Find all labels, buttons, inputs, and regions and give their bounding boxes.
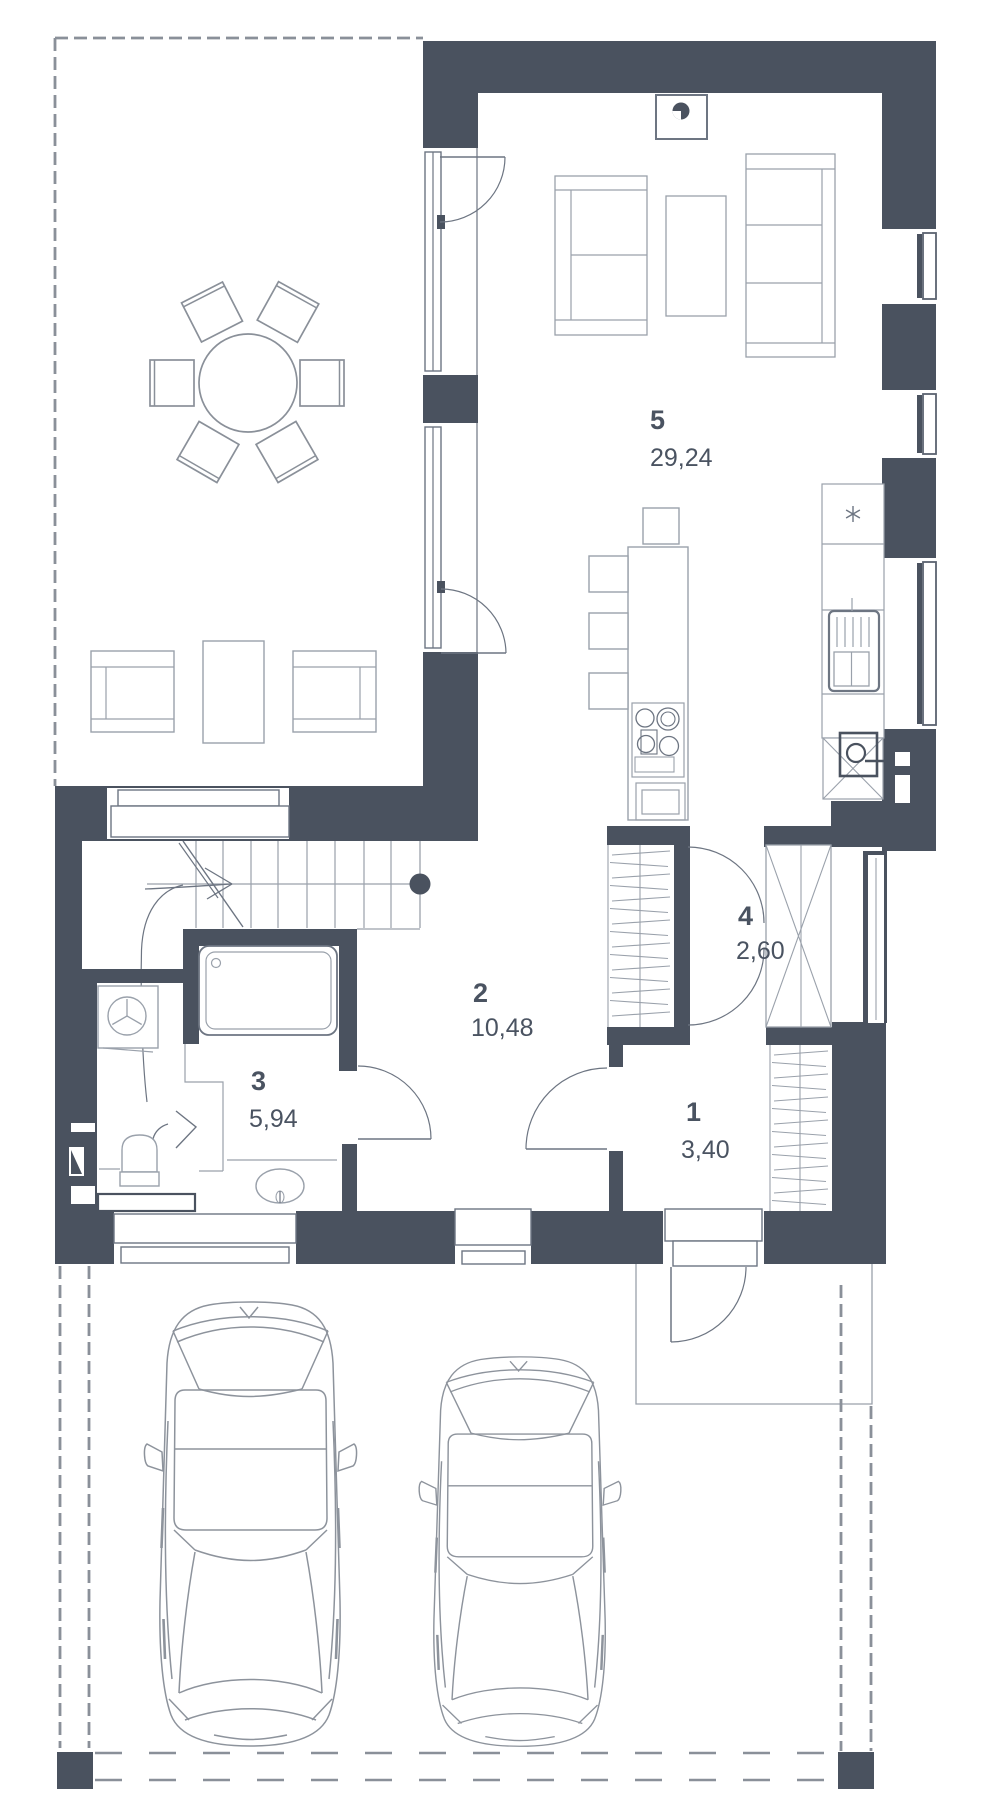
svg-text:2: 2 [473, 978, 488, 1008]
svg-text:2,60: 2,60 [736, 937, 785, 965]
svg-text:3: 3 [251, 1066, 266, 1096]
svg-text:1: 1 [686, 1097, 701, 1127]
svg-text:5: 5 [650, 405, 665, 435]
svg-text:4: 4 [738, 901, 753, 931]
svg-text:3,40: 3,40 [681, 1136, 730, 1164]
svg-text:29,24: 29,24 [650, 444, 713, 472]
svg-text:10,48: 10,48 [471, 1014, 534, 1042]
svg-text:5,94: 5,94 [249, 1105, 298, 1133]
